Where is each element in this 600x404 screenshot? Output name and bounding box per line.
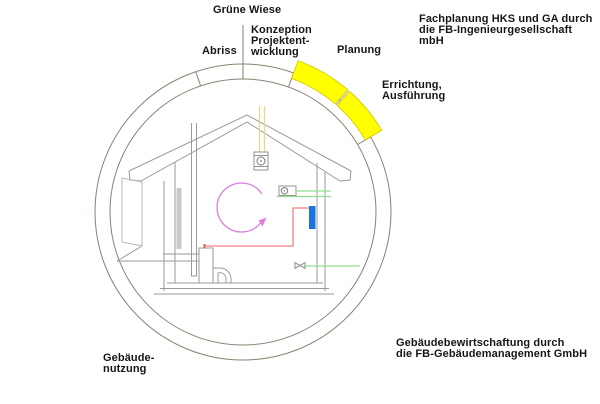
valve-icon [295,263,305,269]
boiler [199,248,213,283]
label-gruene-wiese: Grüne Wiese [213,5,281,16]
ventilation-lines [277,191,360,266]
heating-unit [199,248,231,283]
house-drawing [117,115,351,294]
label-nutzung: Gebäude- nutzung [103,353,155,375]
label-errichtung: Errichtung, Ausführung [382,80,445,102]
circulation-arrow-arc [217,183,262,232]
vent-stack-lines [260,106,265,152]
roof-eave-right [340,171,351,181]
lifecycle-ring [95,25,391,360]
sector-errichtung [337,91,382,139]
label-fachplanung: Fachplanung HKS und GA durch die FB-Inge… [419,14,600,47]
wall-duct-bar [177,188,182,249]
label-konzeption: Konzeption Projektent- wicklung [251,25,312,58]
door-leaf-outline [122,178,142,246]
circulation-arrowhead [259,218,267,227]
porch-diagonal [117,246,142,261]
sector-planung [292,61,348,104]
label-abriss: Abriss [202,46,237,57]
wall-fan-icon [279,186,296,196]
ring-tick-abriss [196,72,201,86]
roof-fan-icon [254,152,268,170]
label-planung: Planung [337,45,381,56]
chimney-shaft [192,123,197,276]
pump [213,268,231,283]
highlighted-phase-sectors [292,61,382,140]
ring-inner-circle [110,79,376,345]
building-lifecycle-diagram: Grüne Wiese Konzeption Projektent- wickl… [0,0,600,404]
roof-outline [129,115,351,171]
label-bewirtschaftung: Gebäudebewirtschaftung durch die FB-Gebä… [396,338,587,360]
radiator [309,206,316,229]
open-door-face [122,178,142,246]
